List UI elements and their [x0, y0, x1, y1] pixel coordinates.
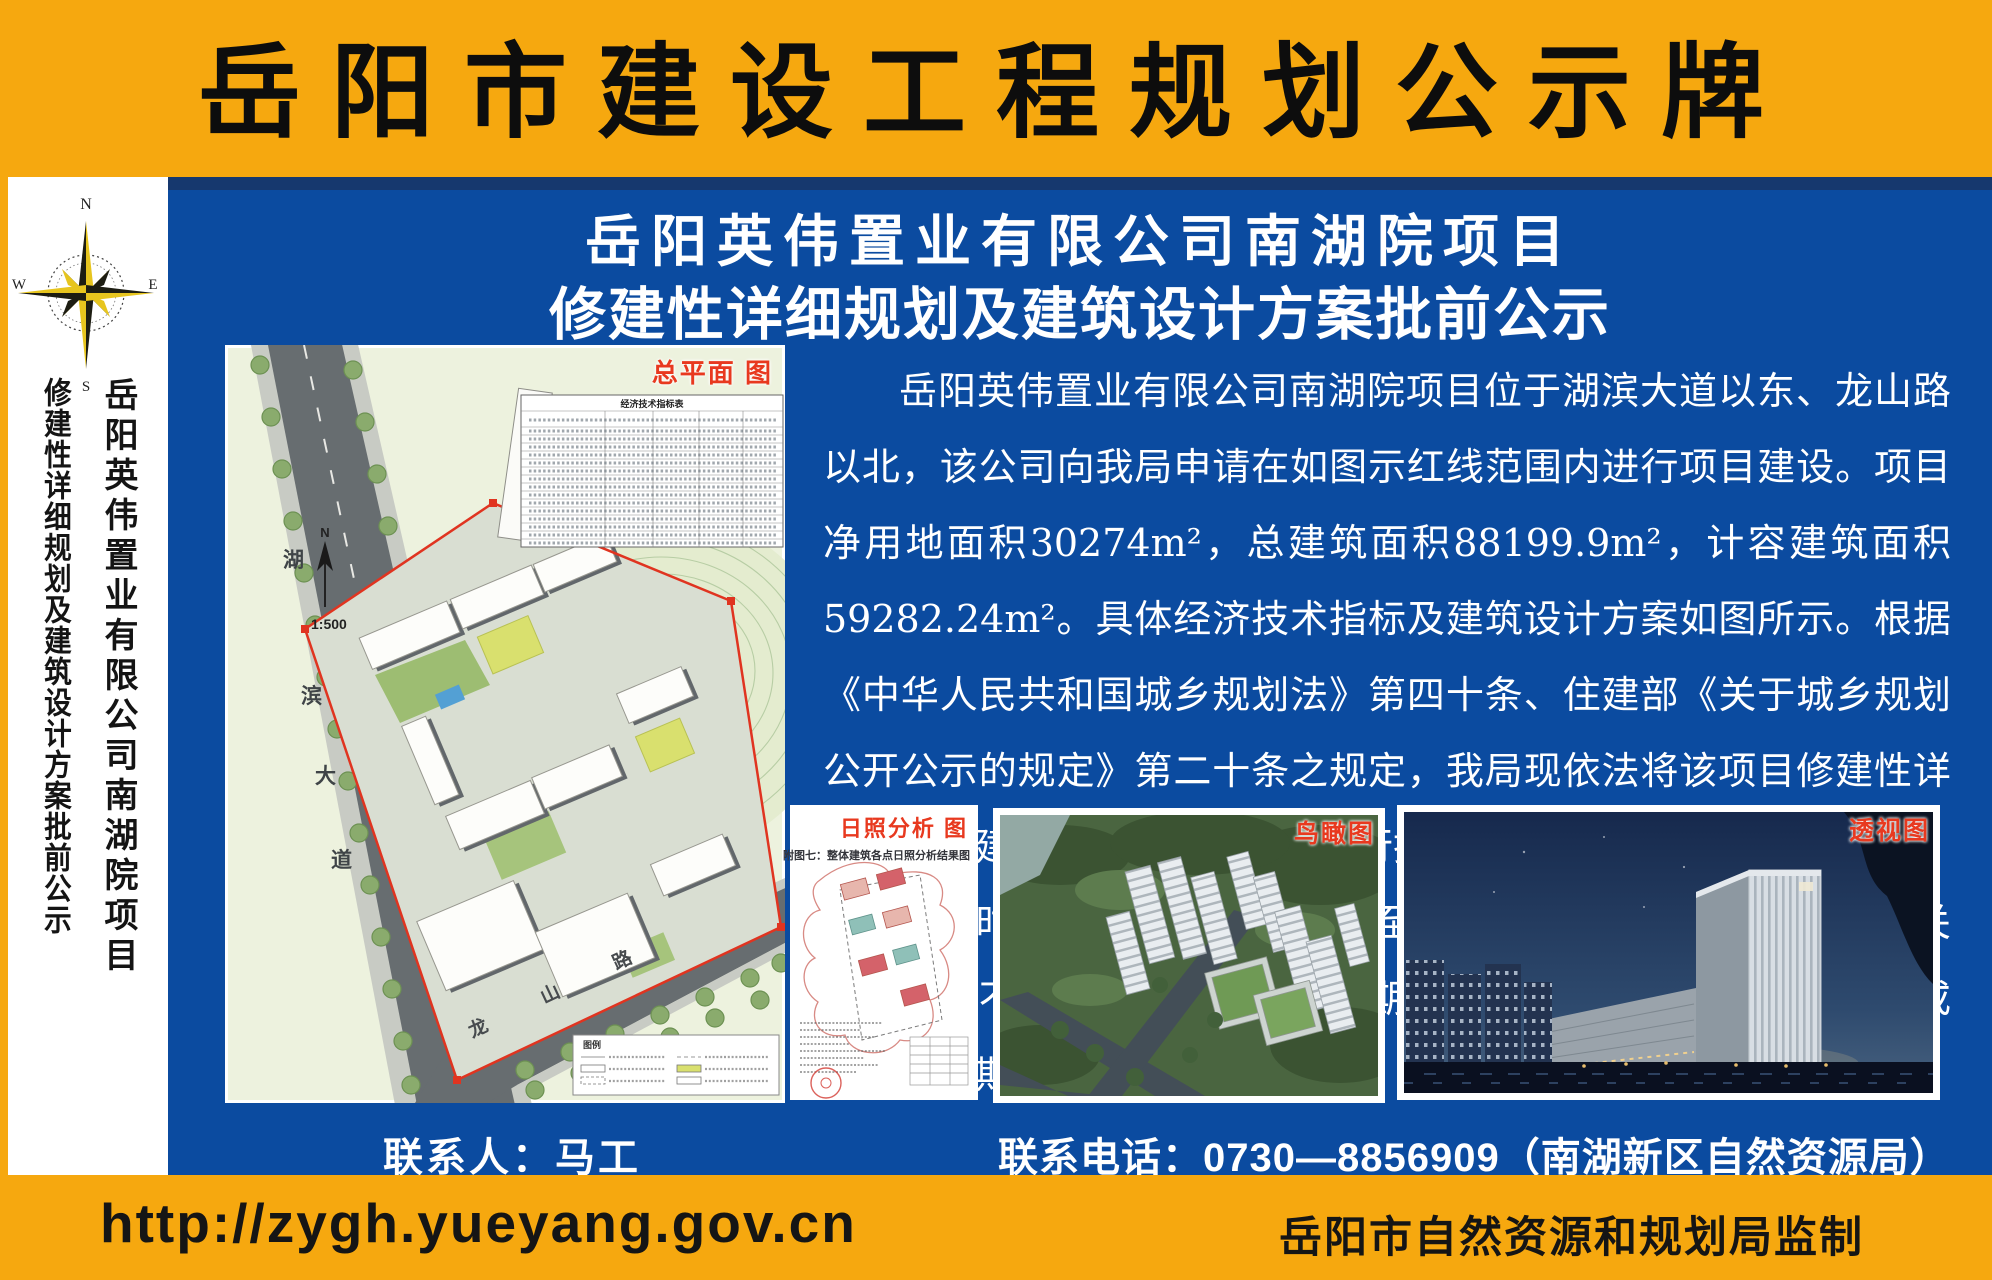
sunlight-caption: 附图七：整体建筑各点日照分析结果图: [783, 847, 970, 863]
legend-title: 图例: [583, 1039, 601, 1050]
plan-legend: 图例: [573, 1035, 779, 1095]
svg-text:滨: 滨: [301, 684, 322, 708]
site-plan-label: 总平面 图: [652, 353, 773, 390]
plan-scale-label: 1:500: [311, 616, 347, 632]
birdseye-render: [1000, 815, 1378, 1096]
compass-rose-icon: N S E W: [10, 191, 162, 403]
compass-w-label: W: [12, 277, 27, 293]
footer-bar: http://zygh.yueyang.gov.cn 岳阳市自然资源和规划局监制: [0, 1175, 1992, 1280]
compass-s-label: S: [82, 379, 90, 395]
left-sidebar: N S E W 岳阳英伟置业有限公司南湖院项目 修建性详细规划及建筑设计方案批前…: [8, 177, 168, 1175]
sidebar-project-subtitle: 修建性详细规划及建筑设计方案批前公示: [34, 377, 74, 935]
project-title-line2: 修建性详细规划及建筑设计方案批前公示: [168, 269, 1992, 351]
project-title-line1: 岳阳英伟置业有限公司南湖院项目: [168, 197, 1992, 278]
perspective-label: 透视图: [1849, 811, 1930, 847]
notice-board: 岳阳市建设工程规划公示牌 N S E W 岳阳英伟置业: [0, 0, 1992, 1280]
sunlight-label: 日照分析 图: [840, 811, 968, 843]
birdseye-label: 鸟瞰图: [1294, 814, 1375, 850]
compass-main-points: [18, 221, 154, 369]
footer-credit: 岳阳市自然资源和规划局监制: [1279, 1203, 1864, 1265]
svg-text:湖: 湖: [283, 549, 304, 572]
main-panel: 岳阳英伟置业有限公司南湖院项目 修建性详细规划及建筑设计方案批前公示 岳阳英伟置…: [168, 177, 1992, 1175]
compass-e-label: E: [148, 277, 157, 293]
main-tower: [1696, 870, 1821, 1069]
table-title: 经济技术指标表: [620, 398, 684, 409]
svg-text:道: 道: [331, 848, 352, 872]
svg-text:大: 大: [315, 765, 336, 788]
compass-n-label: N: [80, 196, 92, 213]
perspective-view-image: 透视图: [1397, 805, 1940, 1100]
economic-indicator-table: 经济技术指标表: [521, 395, 783, 547]
site-plan-image: 总平面 图: [225, 345, 785, 1103]
ground-water: [1404, 1062, 1933, 1093]
perspective-render: [1404, 812, 1933, 1093]
birdseye-view-image: 鸟瞰图: [993, 808, 1385, 1103]
header-divider: [168, 177, 1992, 190]
sidebar-project-name: 岳阳英伟置业有限公司南湖院项目: [94, 377, 143, 977]
sunlight-analysis-image: 日照分析 图 附图七：整体建筑各点日照分析结果图: [790, 805, 978, 1100]
site-plan-drawing: 经济技术指标表: [225, 345, 785, 1103]
footer-url: http://zygh.yueyang.gov.cn: [100, 1191, 857, 1255]
board-title: 岳阳市建设工程规划公示牌: [0, 18, 1992, 168]
plan-north-label: N: [320, 525, 329, 540]
sun-result-table: [910, 1037, 968, 1085]
